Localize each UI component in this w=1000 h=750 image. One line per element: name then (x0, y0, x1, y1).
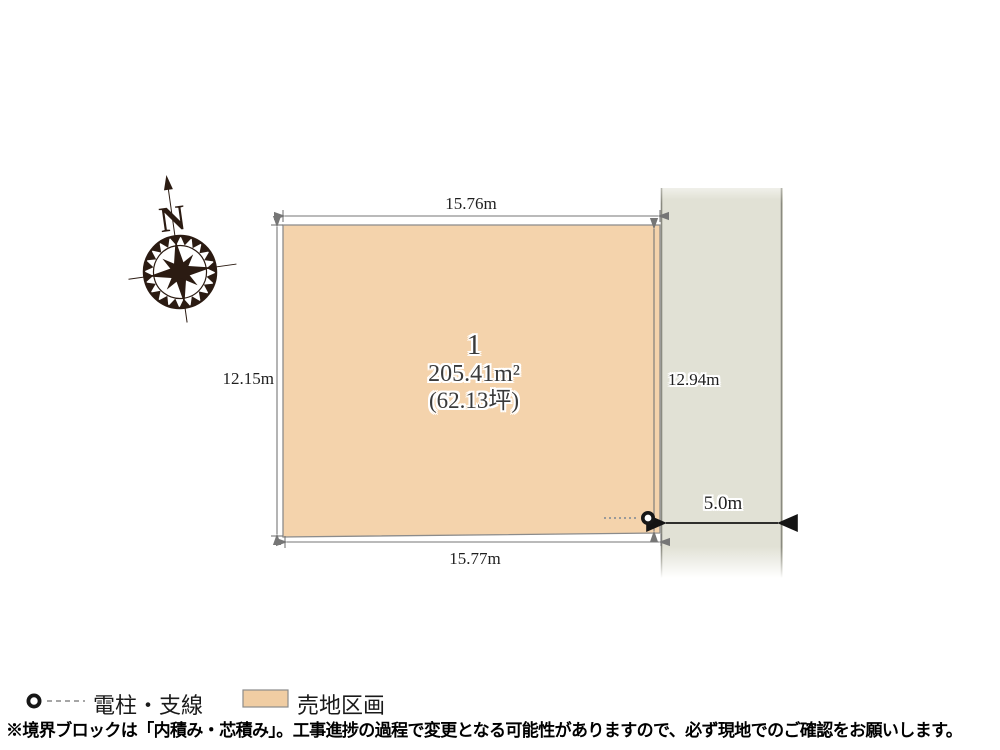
road-width-label: 5.0m (704, 493, 743, 515)
dimension-right-label: 12.94m (668, 370, 719, 390)
lot-area-tsubo: (62.13坪) (428, 388, 520, 414)
lot-1-info: 1 205.41m² (62.13坪) (428, 329, 520, 414)
lot-area-m2: 205.41m² (428, 361, 520, 388)
compass-rose: N (115, 167, 244, 330)
compass-north-label: N (157, 197, 188, 240)
north-arrow-icon (162, 174, 173, 190)
land-plot-diagram: N 15.76m 15.77m 12.15m 12.94m 5.0m 1 205… (0, 0, 1000, 750)
lot-number: 1 (428, 329, 520, 361)
utility-pole-legend-icon (23, 690, 93, 712)
dimension-bottom-label: 15.77m (449, 549, 500, 569)
lot-swatch-icon (242, 689, 290, 709)
dimension-top-label: 15.76m (445, 194, 496, 214)
footnote: ※境界ブロックは「内積み・芯積み」。工事進捗の過程で変更となる可能性がありますの… (6, 716, 998, 741)
dimension-left-label: 12.15m (223, 369, 274, 389)
